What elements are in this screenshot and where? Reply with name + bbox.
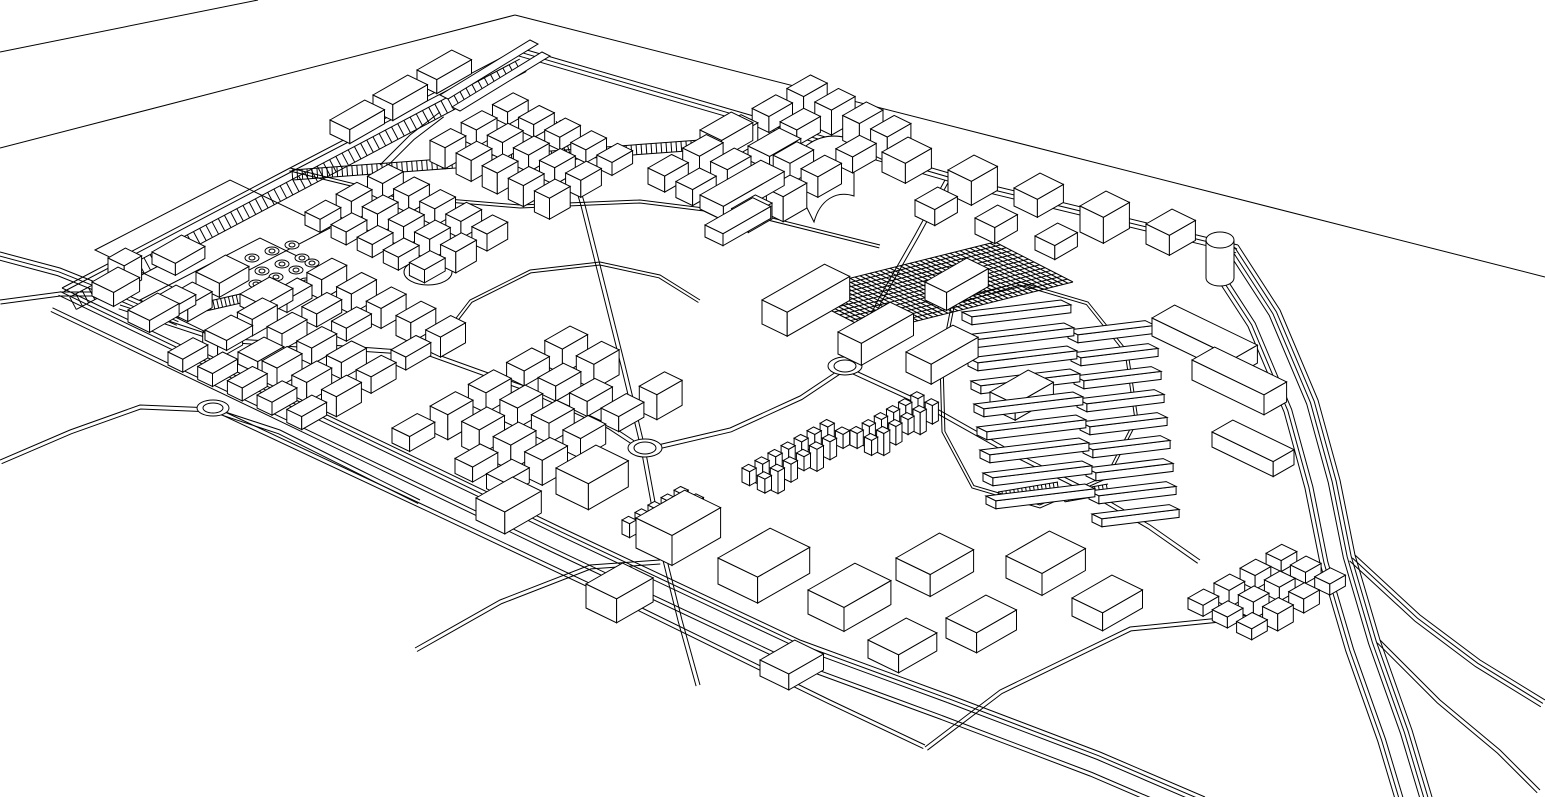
- parking-strip-west-tick: [221, 298, 223, 307]
- hatch-band-upper-tick: [362, 165, 363, 175]
- railway-hatch-northwest-tick: [398, 124, 405, 136]
- railway-hatch-northwest-tick: [416, 114, 423, 126]
- wireframe-city-model-view: [0, 0, 1545, 797]
- railway-hatch-northwest-tick: [422, 111, 429, 123]
- railway-hatch-northwest-tick: [361, 143, 368, 155]
- ground-plane-edge: [515, 15, 1545, 277]
- railway-hatch-northwest-tick: [379, 133, 386, 145]
- hatch-band-upper-tick: [422, 160, 423, 170]
- railway-hatch-northwest-tick: [144, 258, 151, 270]
- hatch-band-upper-tick: [676, 142, 677, 152]
- tree-dot-outer: [289, 266, 303, 274]
- tree-dot-outer: [275, 260, 289, 268]
- highway-main: [1231, 249, 1424, 797]
- railway-hatch-northwest-tick: [385, 130, 392, 142]
- tree-dot-outer: [245, 254, 259, 262]
- hatch-band-upper-tick: [641, 144, 642, 154]
- railway-hatch-northwest-tick: [373, 137, 380, 149]
- hatch-band-upper-tick: [407, 162, 408, 172]
- south-road-extension: [947, 703, 1202, 797]
- micro-towers-a: [778, 468, 785, 494]
- micro-towers-a: [817, 446, 824, 472]
- hatch-band-upper-tick: [656, 143, 657, 153]
- railway-hatch-northwest-tick: [410, 117, 417, 129]
- hatch-band-upper-tick: [367, 165, 368, 175]
- hatch-band-upper-tick: [636, 145, 637, 155]
- tree-dot-outer: [255, 267, 269, 275]
- tree-dot-outer: [265, 247, 279, 255]
- hatch-band-upper-tick: [337, 167, 338, 177]
- railway-hatch-northwest-tick: [293, 179, 300, 191]
- railway-hatch-northwest-tick: [224, 215, 231, 227]
- roundabout-outer: [197, 400, 229, 416]
- railway-hatch-northwest-tick: [342, 153, 349, 165]
- railway-hatch-northwest-tick: [200, 228, 207, 240]
- highway-branch-east: [1355, 555, 1545, 700]
- railway-hatch-northwest-tick: [348, 150, 355, 162]
- hatch-band-upper-tick: [342, 166, 343, 176]
- parking-strip-west-tick: [228, 297, 230, 306]
- hatch-band-upper-tick: [332, 167, 333, 177]
- hatch-band-upper-tick: [671, 142, 672, 152]
- railway-hatch-northwest-tick: [231, 212, 238, 224]
- railway-hatch-northwest-tick: [212, 222, 219, 234]
- hatch-band-upper-tick: [417, 161, 418, 171]
- railway-hatch-northwest-tick: [435, 104, 442, 116]
- south-road-extension: [949, 699, 1204, 797]
- west-spur: [0, 405, 213, 460]
- parking-strip-west-tick: [236, 295, 238, 304]
- highway-branch-corner: [1377, 643, 1537, 793]
- tree-dot-outer: [285, 241, 299, 249]
- highway-main: [1228, 252, 1421, 797]
- hatch-band-upper-tick: [352, 166, 353, 176]
- city-wireframe-svg: [0, 0, 1545, 797]
- pill-tower-top: [1206, 232, 1234, 248]
- highway-main: [1238, 245, 1432, 797]
- railway-hatch-northwest-tick: [367, 140, 374, 152]
- railway-hatch-northwest-tick: [354, 147, 361, 159]
- hatch-band-upper-tick: [412, 161, 413, 171]
- railway-hatch-northwest-tick: [441, 101, 448, 113]
- railway-hatch-northwest-tick: [237, 209, 244, 221]
- railway-hatch-northwest-tick: [286, 183, 293, 195]
- railway-hatch-northwest-tick: [299, 176, 306, 188]
- parking-strip-west-tick: [225, 298, 227, 307]
- hatch-band-upper-tick: [357, 165, 358, 175]
- railway-hatch-northwest-tick: [330, 160, 337, 172]
- hatch-band-upper-tick: [646, 144, 647, 154]
- micro-towers-c: [884, 430, 890, 456]
- railway-hatch-northwest-tick: [404, 120, 411, 132]
- tree-dot-outer: [305, 259, 319, 267]
- hatch-band-upper-tick: [372, 164, 373, 174]
- hatch-band-upper-tick: [347, 166, 348, 176]
- ground-plane-edge: [0, 0, 258, 52]
- hatch-band-upper-tick: [661, 143, 662, 153]
- highway-main: [1235, 247, 1429, 797]
- railway-hatch-northwest-tick: [218, 219, 225, 231]
- micro-towers-c: [920, 409, 926, 435]
- railway-hatch-northwest-tick: [274, 189, 281, 201]
- parking-strip-west-tick: [217, 299, 219, 308]
- railway-hatch-northwest-tick: [255, 199, 262, 211]
- hatch-band-upper-tick: [681, 141, 682, 151]
- hatch-band-upper-tick: [317, 168, 318, 178]
- south-road-extension: [950, 695, 1205, 797]
- railway-hatch-northwest-tick: [206, 225, 213, 237]
- parking-strip-west-tick: [232, 296, 234, 305]
- hatch-band-upper-tick: [427, 160, 428, 170]
- south-road-extension: [942, 716, 1196, 797]
- building-prisms: [92, 50, 1345, 690]
- railway-hatch-northwest-tick: [243, 205, 250, 217]
- hatch-band-upper-tick: [666, 143, 667, 153]
- hatch-band-upper-tick: [651, 144, 652, 154]
- hatch-band-upper-tick: [327, 167, 328, 177]
- highway-branch-corner: [1380, 640, 1540, 790]
- hatch-band-upper-tick: [297, 170, 298, 180]
- parking-strip-west-tick: [213, 300, 215, 309]
- railway-hatch-northwest-tick: [392, 127, 399, 139]
- railway-hatch-northwest-tick: [280, 186, 287, 198]
- spur-to-perimeter: [212, 412, 418, 504]
- railway-hatch-northwest-tick: [249, 202, 256, 214]
- hatch-band-upper-tick: [402, 162, 403, 172]
